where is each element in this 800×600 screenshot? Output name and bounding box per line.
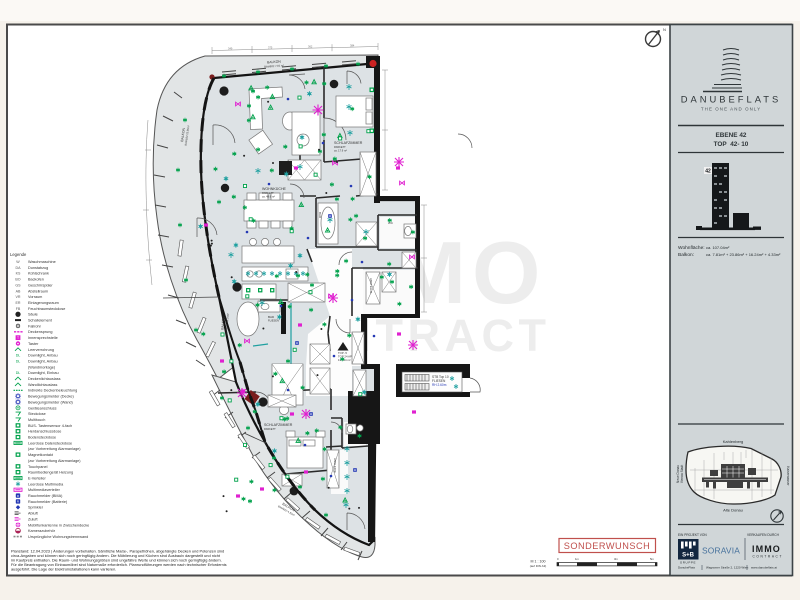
svg-text:SORAVIA: SORAVIA bbox=[702, 546, 740, 556]
svg-text:ANKLEIDE: ANKLEIDE bbox=[333, 458, 337, 473]
svg-text:Rauchmelder (BMA): Rauchmelder (BMA) bbox=[28, 494, 63, 498]
svg-text:DL: DL bbox=[16, 359, 21, 363]
svg-text:Bodensteckdose: Bodensteckdose bbox=[28, 436, 56, 440]
svg-text:Alte Donau: Alte Donau bbox=[723, 508, 743, 513]
svg-text:ca. 48.6 m²: ca. 48.6 m² bbox=[262, 194, 275, 198]
svg-text:Multimediaverteiler: Multimediaverteiler bbox=[28, 488, 61, 492]
svg-text:GRUPPE: GRUPPE bbox=[680, 561, 696, 565]
svg-text:Rauchmelder (Batterie): Rauchmelder (Batterie) bbox=[28, 500, 68, 504]
svg-text:THE ONE AND ONLY: THE ONE AND ONLY bbox=[701, 107, 761, 112]
svg-text:Downlight, Anbau: Downlight, Anbau bbox=[28, 354, 58, 358]
svg-text:Einlagerungsraum: Einlagerungsraum bbox=[28, 301, 59, 305]
svg-text:349: 349 bbox=[228, 47, 233, 51]
svg-text:VERKAUFEN DURCH: VERKAUFEN DURCH bbox=[747, 533, 780, 537]
svg-text:Geschirrspüler: Geschirrspüler bbox=[28, 283, 53, 287]
svg-text:Sprinkler: Sprinkler bbox=[28, 506, 44, 510]
svg-text:WOHNKÜCHE: WOHNKÜCHE bbox=[262, 187, 287, 191]
svg-text:Zuluft: Zuluft bbox=[28, 517, 38, 521]
svg-text:EIN PROJEKT VON: EIN PROJEKT VON bbox=[678, 533, 707, 537]
svg-text:Fallrohr: Fallrohr bbox=[28, 324, 42, 328]
svg-text:Kahlenberg: Kahlenberg bbox=[723, 439, 743, 444]
svg-text:5m: 5m bbox=[650, 557, 655, 561]
svg-text:SCHLAFZIMMER: SCHLAFZIMMER bbox=[334, 141, 363, 145]
svg-text:M 1 : 100: M 1 : 100 bbox=[531, 560, 546, 564]
svg-text:384: 384 bbox=[350, 44, 355, 48]
svg-text:DL: DL bbox=[16, 354, 21, 358]
svg-text:PARKETT: PARKETT bbox=[334, 145, 346, 149]
svg-text:Geräteanschluss: Geräteanschluss bbox=[28, 406, 57, 410]
svg-text:Wagramer Straße 2, 1220 Wien: Wagramer Straße 2, 1220 Wien bbox=[706, 566, 749, 570]
svg-text:RH 2.60m: RH 2.60m bbox=[432, 383, 447, 387]
svg-text:Mobilfunkantenne in Zwischende: Mobilfunkantenne in Zwischendecke bbox=[28, 523, 89, 527]
svg-text:FLIESEN: FLIESEN bbox=[268, 319, 279, 323]
svg-text:Backofen: Backofen bbox=[28, 278, 44, 282]
svg-text:Balkon:: Balkon: bbox=[678, 252, 694, 258]
svg-text:BAD: BAD bbox=[268, 315, 275, 319]
svg-text:Kühlschrank: Kühlschrank bbox=[28, 272, 49, 276]
svg-text:Downlight, Anbau: Downlight, Anbau bbox=[28, 359, 58, 363]
svg-text:W: W bbox=[16, 260, 20, 264]
svg-text:Leerverrohrung: Leerverrohrung bbox=[28, 348, 54, 352]
svg-text:ca. 17.9 m²: ca. 17.9 m² bbox=[334, 148, 347, 152]
svg-text:Säule: Säule bbox=[28, 313, 38, 317]
svg-text:375: 375 bbox=[268, 46, 273, 50]
svg-text:Magnetkontakt: Magnetkontakt bbox=[28, 453, 54, 457]
svg-text:Taster: Taster bbox=[28, 342, 39, 346]
svg-text:www.danubeflats.at: www.danubeflats.at bbox=[751, 566, 777, 570]
svg-text:DanubeFlats: DanubeFlats bbox=[678, 566, 696, 570]
svg-text:(auf DIN A3): (auf DIN A3) bbox=[530, 564, 547, 568]
svg-text:Abluft: Abluft bbox=[28, 512, 39, 516]
svg-text:PARKETT: PARKETT bbox=[262, 191, 274, 195]
svg-text:ca. 107.04m²: ca. 107.04m² bbox=[706, 245, 730, 250]
svg-text:ER: ER bbox=[16, 301, 21, 305]
svg-text:IMMO: IMMO bbox=[752, 544, 781, 554]
svg-text:ABSTELLR.: ABSTELLR. bbox=[369, 278, 373, 294]
svg-text:EBENE 42: EBENE 42 bbox=[716, 132, 747, 139]
svg-text:BAD: BAD bbox=[318, 212, 322, 219]
svg-text:Waschmaschine: Waschmaschine bbox=[28, 260, 56, 264]
svg-text:Kaiserwasser: Kaiserwasser bbox=[786, 466, 790, 486]
svg-text:Indirekte Deckenbeleuchtung: Indirekte Deckenbeleuchtung bbox=[28, 389, 77, 393]
svg-text:42: 42 bbox=[705, 169, 711, 175]
svg-text:DA: DA bbox=[16, 266, 22, 270]
svg-text:Bewegungsmelder (Decke): Bewegungsmelder (Decke) bbox=[28, 395, 75, 399]
svg-text:ca. 7.81m² + 23.86m² + 16.24m²: ca. 7.81m² + 23.86m² + 16.24m² + 4.33m² bbox=[706, 252, 781, 257]
svg-text:KS: KS bbox=[16, 272, 21, 276]
svg-text:Vienna Stadt: Vienna Stadt bbox=[680, 465, 684, 483]
svg-text:CONTRACT: CONTRACT bbox=[753, 555, 784, 559]
svg-text:FB: FB bbox=[16, 307, 21, 311]
svg-text:Downlight, Einbau: Downlight, Einbau bbox=[28, 371, 59, 375]
svg-text:Vorraum: Vorraum bbox=[28, 295, 42, 299]
svg-text:Wohnfläche:: Wohnfläche: bbox=[678, 245, 705, 251]
svg-text:AB: AB bbox=[16, 289, 21, 293]
svg-text:VR: VR bbox=[16, 295, 21, 299]
svg-text:DANUBEFLATS: DANUBEFLATS bbox=[681, 94, 782, 105]
svg-text:Feuchtraumsteckdose: Feuchtraumsteckdose bbox=[28, 307, 65, 311]
svg-text:BO: BO bbox=[15, 278, 20, 282]
svg-text:Kamerazubehör: Kamerazubehör bbox=[28, 529, 56, 533]
svg-text:Schallelement: Schallelement bbox=[28, 319, 53, 323]
svg-text:Legende: Legende bbox=[10, 252, 27, 257]
svg-text:Abstellraum: Abstellraum bbox=[28, 289, 48, 293]
svg-text:1m: 1m bbox=[575, 557, 580, 561]
svg-text:BUS- Tastensensor 4-fach: BUS- Tastensensor 4-fach bbox=[28, 424, 72, 428]
svg-text:N: N bbox=[663, 27, 666, 32]
svg-text:E-Verteiler: E-Verteiler bbox=[28, 476, 46, 480]
svg-text:GS: GS bbox=[15, 283, 21, 287]
svg-text:(Wandmontage): (Wandmontage) bbox=[28, 365, 56, 369]
svg-text:Innensprechstelle: Innensprechstelle bbox=[28, 336, 58, 340]
svg-text:Wandlichtauslass: Wandlichtauslass bbox=[28, 383, 58, 387]
svg-text:TOP 42- 10: TOP 42- 10 bbox=[714, 141, 749, 148]
svg-text:T: T bbox=[17, 336, 19, 340]
svg-text:362: 362 bbox=[308, 45, 313, 49]
svg-text:SONDERWUNSCH: SONDERWUNSCH bbox=[564, 541, 650, 551]
svg-text:Multitouch: Multitouch bbox=[28, 418, 45, 422]
svg-text:(zur Vorbereitung Alarmanlage): (zur Vorbereitung Alarmanlage) bbox=[28, 447, 81, 451]
svg-text:137.24 m²: 137.24 m² bbox=[338, 358, 351, 362]
svg-text:WC: WC bbox=[388, 221, 394, 225]
svg-text:Deckensprung: Deckensprung bbox=[28, 330, 52, 334]
svg-text:SCHLAFZIMMER: SCHLAFZIMMER bbox=[264, 423, 293, 427]
svg-text:ausgeführt. Die Lage der Elekt: ausgeführt. Die Lage der Elektroinstalla… bbox=[11, 567, 116, 572]
svg-text:Dunstabzug: Dunstabzug bbox=[28, 266, 48, 270]
svg-text:PARKETT: PARKETT bbox=[264, 427, 276, 431]
svg-text:Touchpanel: Touchpanel bbox=[28, 465, 48, 469]
svg-text:Herdanschlussdose: Herdanschlussdose bbox=[28, 430, 61, 434]
svg-text:Steckdose: Steckdose bbox=[28, 412, 46, 416]
svg-text:DL: DL bbox=[16, 371, 21, 375]
svg-text:Leerdose Datensteckdose: Leerdose Datensteckdose bbox=[28, 441, 72, 445]
svg-text:Leerdose Multimedia: Leerdose Multimedia bbox=[28, 482, 64, 486]
svg-text:Raumbediengerät Heizung: Raumbediengerät Heizung bbox=[28, 471, 73, 475]
svg-text:Deckenlichtauslass: Deckenlichtauslass bbox=[28, 377, 61, 381]
svg-text:S+B: S+B bbox=[682, 553, 695, 559]
svg-text:(zur Vorbereitung Alarmanlage): (zur Vorbereitung Alarmanlage) bbox=[28, 459, 81, 463]
svg-text:Ursprüngliche Wohnungstrennwan: Ursprüngliche Wohnungstrennwand bbox=[28, 535, 88, 539]
svg-text:Bewegungsmelder (Wand): Bewegungsmelder (Wand) bbox=[28, 400, 74, 404]
svg-text:3m: 3m bbox=[614, 557, 619, 561]
